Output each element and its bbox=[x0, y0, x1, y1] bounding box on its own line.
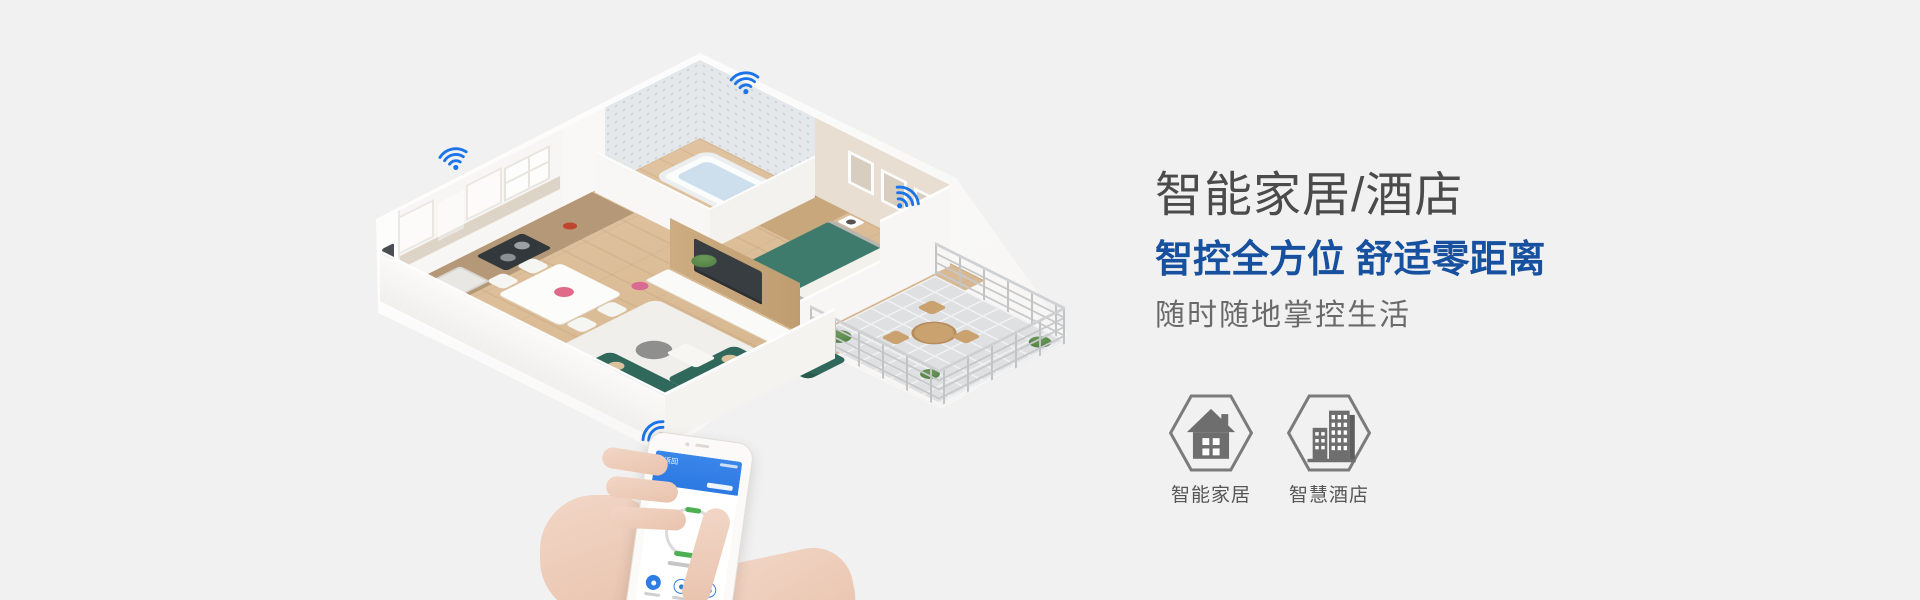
power-button[interactable] bbox=[645, 574, 662, 591]
flower-vase bbox=[550, 285, 578, 299]
wifi-icon bbox=[728, 68, 763, 97]
app-button-group bbox=[644, 574, 663, 597]
app-title-text bbox=[707, 482, 733, 491]
feature-label: 智能家居 bbox=[1167, 480, 1255, 507]
button-label bbox=[644, 592, 660, 597]
home-icon bbox=[1168, 393, 1254, 473]
phone-in-hand: ‹ 返回 bbox=[540, 355, 830, 600]
feature-smart-home[interactable]: 智能家居 bbox=[1167, 393, 1255, 507]
left-hand-finger bbox=[610, 506, 687, 531]
speaker-grill bbox=[695, 443, 709, 448]
status-bar-icons bbox=[720, 463, 738, 468]
cooking-pot bbox=[511, 240, 533, 251]
hotel-icon bbox=[1286, 393, 1372, 473]
hero-tagline: 随时随地掌控生活 bbox=[1155, 299, 1546, 332]
hero-copy: 智能家居/酒店 智控全方位 舒适零距离 随时随地掌控生活 bbox=[1155, 170, 1546, 332]
hero-subtitle: 智控全方位 舒适零距离 bbox=[1155, 240, 1546, 282]
feature-list: 智能家居 bbox=[1167, 393, 1373, 507]
hero-banner: ‹ 返回 bbox=[0, 0, 1920, 600]
wifi-icon bbox=[436, 143, 473, 175]
feature-label: 智慧酒店 bbox=[1285, 480, 1373, 507]
feature-smart-hotel[interactable]: 智慧酒店 bbox=[1285, 393, 1373, 507]
hero-title: 智能家居/酒店 bbox=[1155, 170, 1546, 223]
dial-green-indicator bbox=[685, 507, 702, 514]
bedside-lamp bbox=[844, 219, 858, 226]
cooking-pot bbox=[497, 252, 519, 263]
fruit-bowl bbox=[560, 221, 580, 231]
front-camera bbox=[685, 442, 690, 447]
